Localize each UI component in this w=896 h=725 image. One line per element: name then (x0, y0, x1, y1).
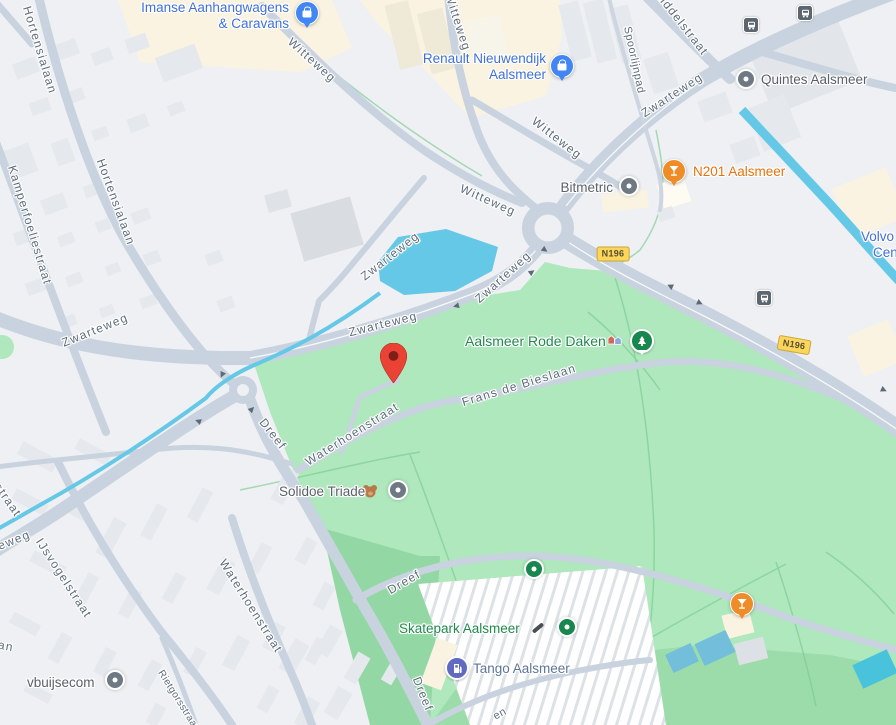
poi-dot-vbuijsecom[interactable] (105, 670, 125, 690)
poi-dot-solidoe[interactable] (388, 480, 408, 500)
map-canvas[interactable]: Hortensialaan Hortensialaan Kamperfoelie… (0, 0, 896, 725)
park-poi-rode-daken[interactable] (630, 329, 654, 353)
park-poi-dot[interactable] (557, 617, 577, 637)
shopping-bag-icon (558, 64, 567, 71)
basemap (0, 0, 896, 725)
bus-stop-icon[interactable] (756, 290, 772, 306)
bus-stop-icon[interactable] (743, 17, 759, 33)
poi-label-skatepark[interactable]: Skatepark Aalsmeer (399, 621, 520, 636)
park-poi-dot[interactable] (524, 559, 544, 579)
poi-label-vbuijsecom[interactable]: vbuijsecom (27, 675, 95, 690)
route-shield-n196: N196 (597, 247, 630, 262)
teddy-bear-icon (365, 487, 376, 498)
cocktail-icon (668, 165, 680, 177)
poi-dot-quintes[interactable] (736, 69, 756, 89)
destination-pin[interactable] (380, 343, 407, 388)
shopping-pin-renault[interactable] (550, 54, 574, 78)
tree-icon (636, 335, 648, 347)
bar-pin-n201[interactable] (662, 159, 686, 183)
cocktail-icon (736, 598, 748, 610)
poi-label-imanse[interactable]: Imanse Aanhangwagens& Caravans (141, 0, 289, 32)
poi-label-tango[interactable]: Tango Aalsmeer (473, 661, 570, 676)
houses-icon (607, 333, 623, 351)
poi-label-quintes[interactable]: Quintes Aalsmeer (761, 72, 868, 87)
poi-label-n201[interactable]: N201 Aalsmeer (693, 164, 785, 179)
street-label-partial-an: an (0, 638, 15, 655)
poi-label-bitmetric[interactable]: Bitmetric (560, 180, 613, 195)
bar-pin[interactable] (730, 592, 754, 616)
gas-station-poi-tango[interactable] (445, 656, 469, 680)
poi-dot-bitmetric[interactable] (619, 176, 639, 196)
poi-label-volvo[interactable]: VolvoCenter (861, 229, 896, 261)
poi-label-renault[interactable]: Renault NieuwendijkAalsmeer (423, 51, 546, 83)
poi-label-rode-daken[interactable]: Aalsmeer Rode Daken (465, 333, 606, 349)
shopping-bag-icon (303, 11, 312, 18)
poi-label-solidoe[interactable]: Solidoe Triade (279, 484, 365, 499)
fuel-pump-icon (452, 663, 463, 674)
shopping-pin-imanse[interactable] (295, 1, 319, 25)
bus-stop-icon[interactable] (797, 5, 813, 21)
